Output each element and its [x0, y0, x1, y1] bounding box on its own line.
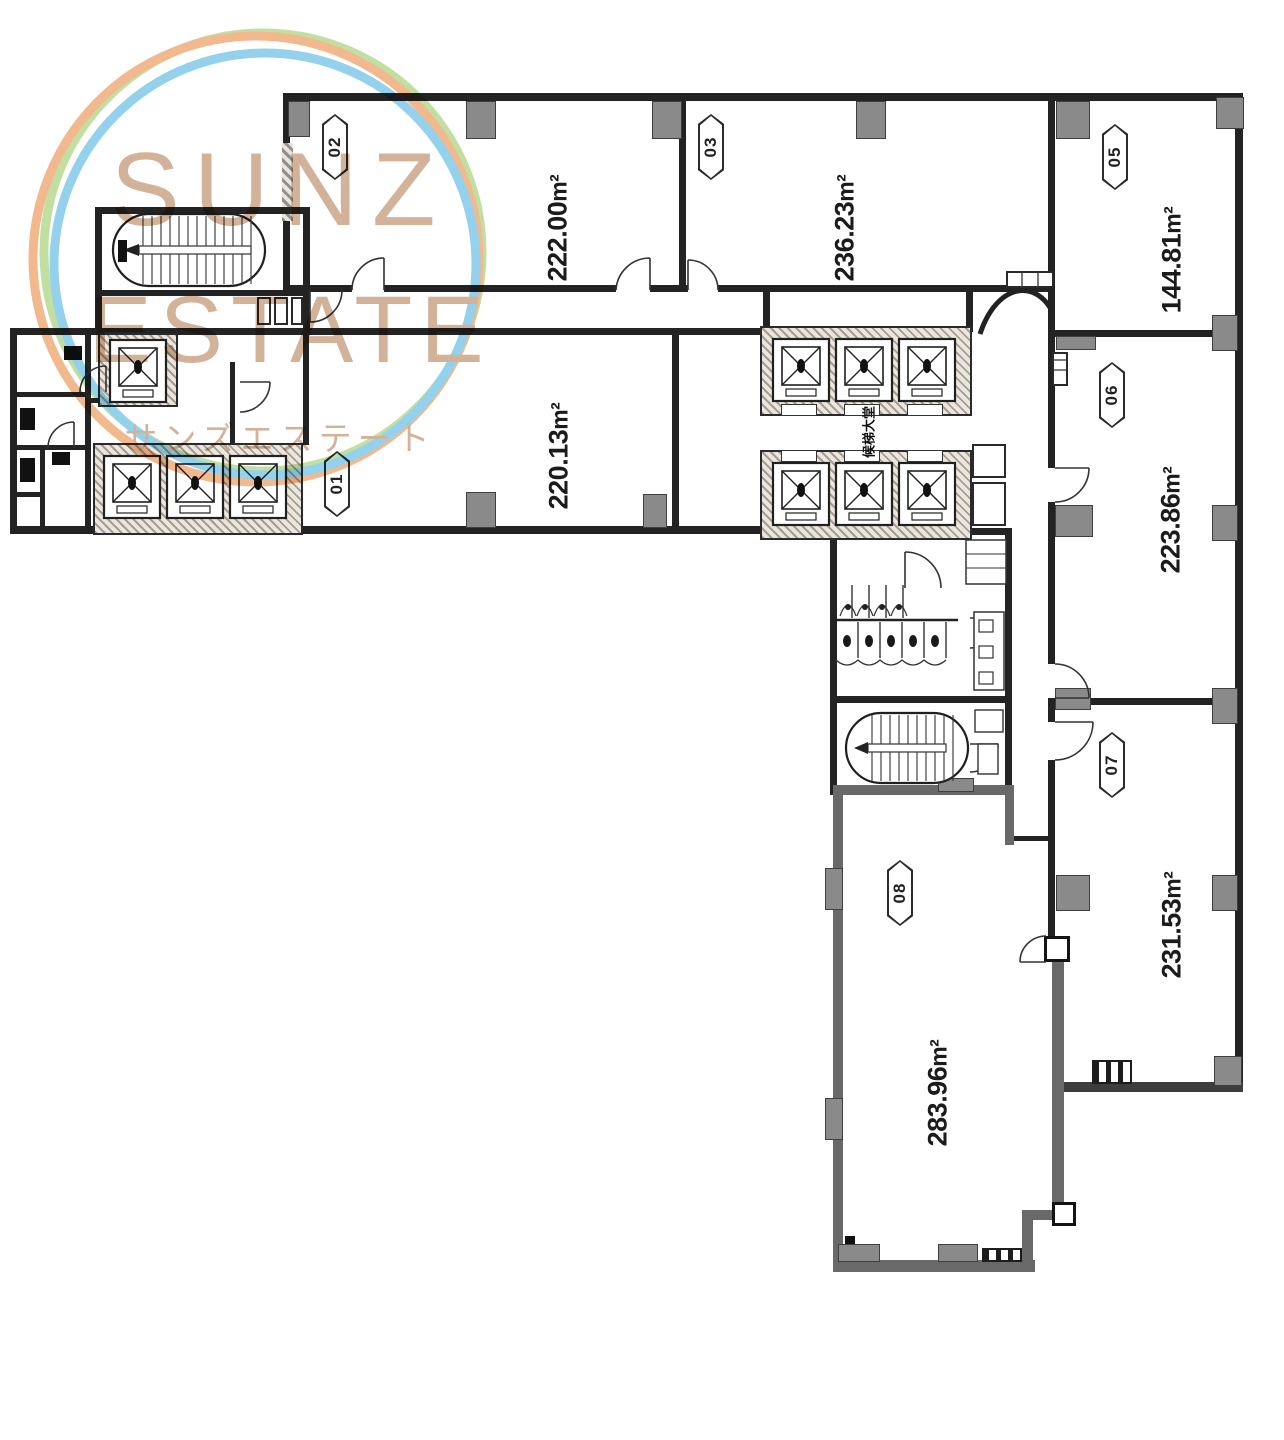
room-07-number: 07	[1079, 752, 1145, 778]
room-05-number: 05	[1082, 144, 1148, 170]
room-07-badge: 07	[1099, 732, 1125, 798]
room-03-area-label: 236.23m²	[830, 175, 861, 282]
logo-ring-blue	[54, 53, 476, 475]
sink-counter	[1022, 271, 1038, 288]
room-05-badge: 05	[1102, 124, 1128, 190]
room-08-area-label: 283.96m²	[923, 1040, 954, 1147]
room-06-area-label: 223.86m²	[1156, 467, 1187, 574]
stairs-icon	[846, 713, 968, 783]
room-01-area-label: 220.13m²	[544, 403, 575, 510]
restroom-fixtures	[836, 540, 1006, 690]
room-03-badge: 03	[698, 114, 724, 180]
room-06-badge: 06	[1099, 362, 1125, 428]
room-06-number: 06	[1079, 382, 1145, 408]
elevator-lobby-label: 候梯大堂	[859, 406, 878, 458]
room-08-badge: 08	[887, 860, 913, 926]
logo-subtitle: サンズエステート	[124, 420, 435, 457]
room-02-area-label: 222.00m²	[543, 175, 574, 282]
room-07-area-label: 231.53m²	[1157, 872, 1188, 979]
logo-title-line2: ESTATE	[88, 277, 491, 383]
room-08-number: 08	[867, 880, 933, 906]
sunz-estate-watermark: SUNZ ESTATE サンズエステート	[28, 12, 508, 522]
curved-wall	[980, 291, 1052, 334]
floor-plan: 01 02 03 05 06 07 08 220.13m² 222.00m² 2…	[0, 0, 1284, 1440]
room-05-area-label: 144.81m²	[1157, 207, 1188, 314]
room-03-number: 03	[678, 134, 744, 160]
logo-title-line1: SUNZ	[110, 132, 449, 248]
